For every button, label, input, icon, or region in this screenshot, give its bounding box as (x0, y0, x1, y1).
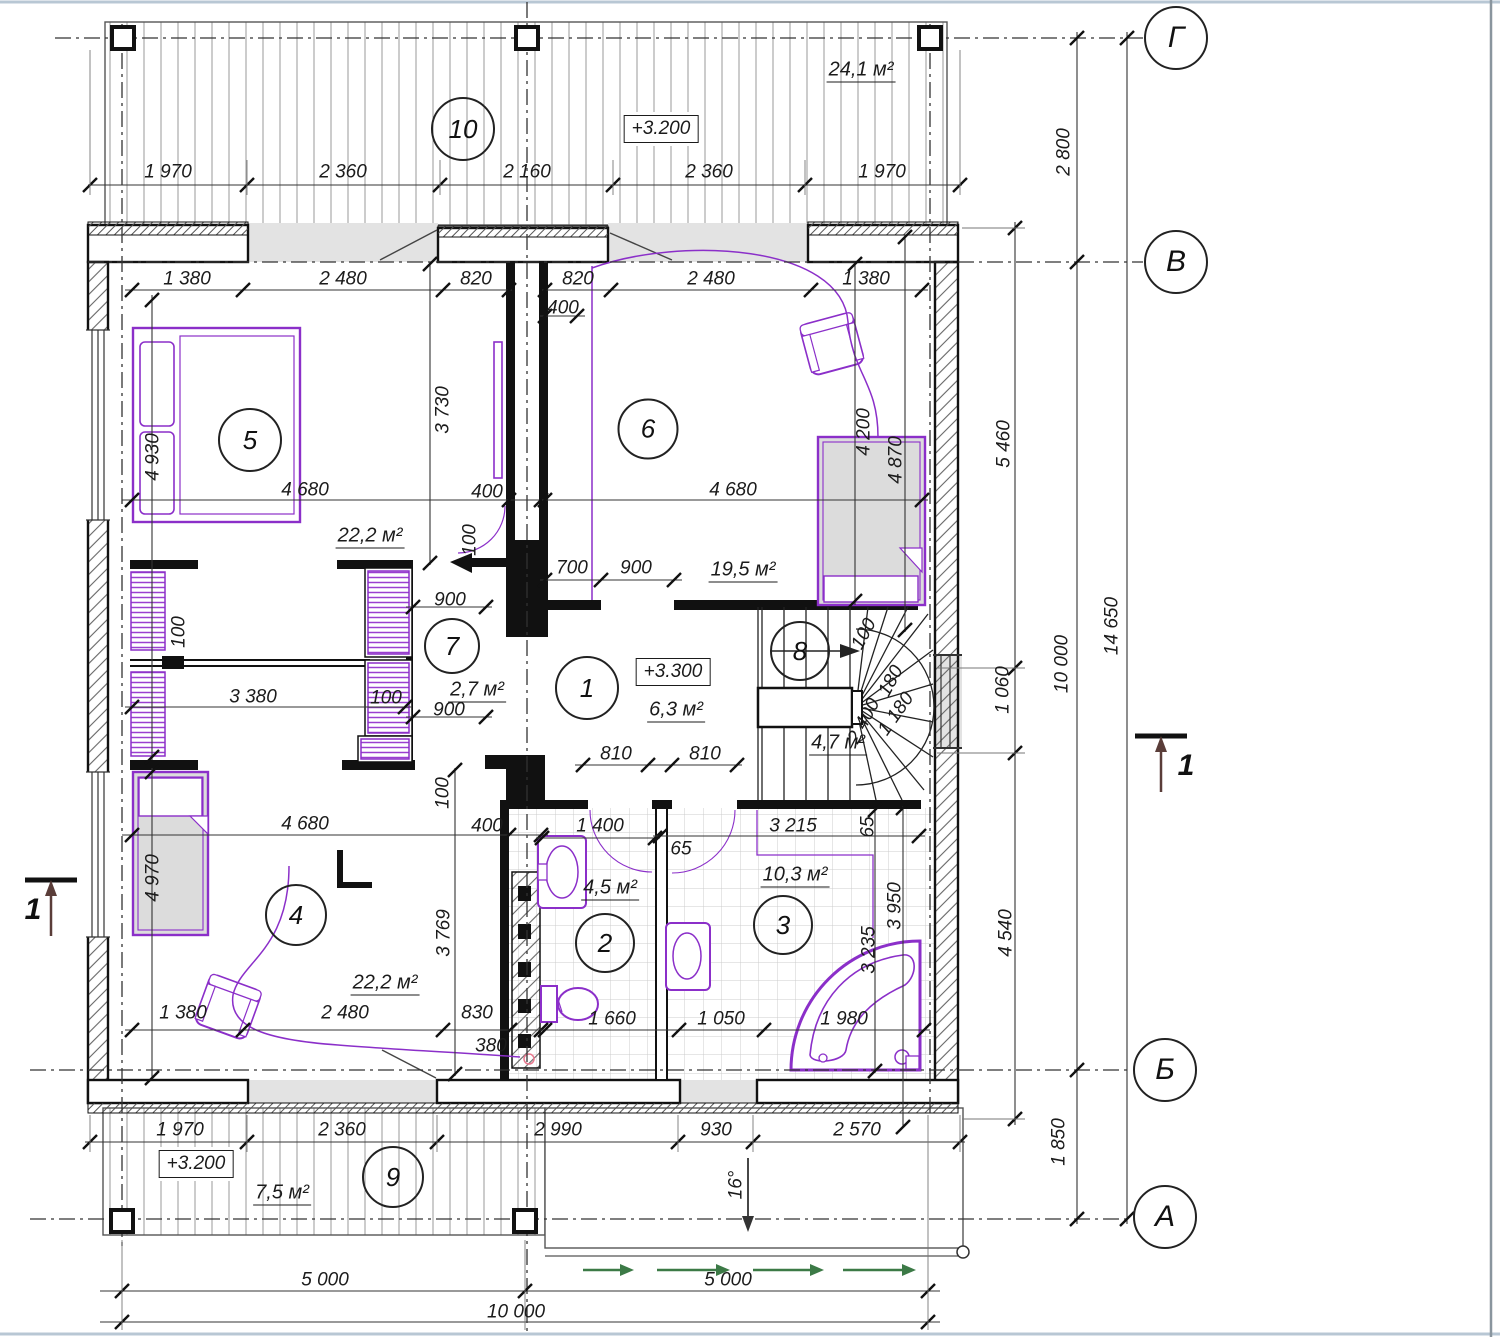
shaft-panel (494, 342, 502, 478)
direction-arrows (583, 1264, 916, 1276)
staircase (758, 607, 934, 800)
armchair-room4 (194, 973, 263, 1040)
floorplan-canvas: 1 9702 3602 1602 3601 9701 3802 48082082… (0, 0, 1500, 1337)
sink-bath3 (666, 923, 710, 990)
bed-room5 (133, 328, 300, 522)
terrace (545, 1108, 969, 1258)
bed-room4 (133, 772, 208, 935)
bed-room6 (818, 437, 925, 605)
plan-linework (0, 0, 1500, 1337)
plumbing-shaft (512, 872, 540, 1068)
toilet (541, 986, 598, 1022)
balcony-top (105, 22, 947, 225)
sink-bath2 (538, 836, 586, 908)
balcony-bottom (103, 1108, 545, 1235)
